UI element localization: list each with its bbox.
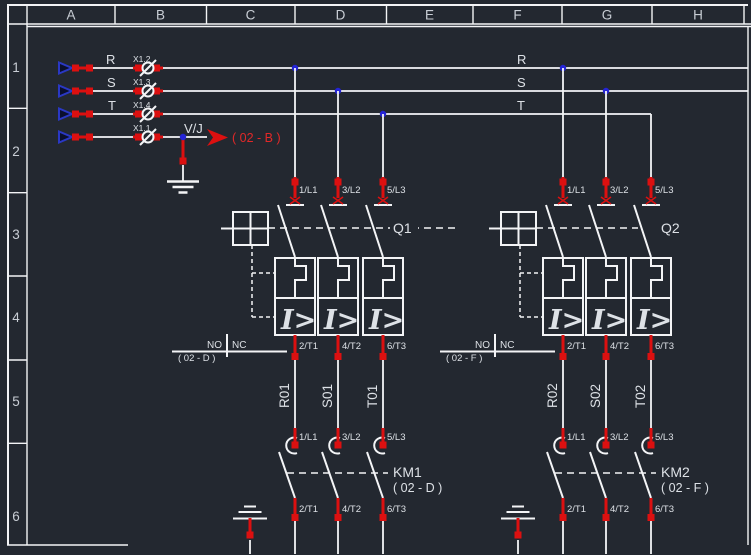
row-header: 5 — [12, 394, 20, 409]
row-header: 4 — [12, 310, 20, 325]
wire-number-label: S02 — [588, 384, 603, 408]
trip-link-dashed — [520, 245, 543, 317]
terminal-x-marks — [290, 197, 388, 204]
frame-outer-border — [7, 5, 748, 545]
terminal-x-marks — [558, 197, 656, 204]
neutral-label: V/J — [184, 121, 203, 136]
aux-crossref-label: ( 02 - F ) — [446, 353, 482, 364]
contactor-terminal-label: 1/L1 — [299, 432, 318, 443]
contactor-terminal-label: 1/L1 — [567, 432, 586, 443]
breaker-terminal-label: 1/L1 — [299, 185, 318, 196]
breaker-terminal-label: 2/T1 — [299, 341, 318, 352]
column-header: G — [602, 8, 613, 23]
aux-crossref-label: ( 02 - D ) — [178, 353, 215, 364]
trip-symbol: I> — [280, 305, 316, 336]
phase-label-left: R — [106, 52, 115, 67]
wire-number-label: T02 — [633, 385, 648, 408]
trip-symbol: I> — [368, 305, 404, 336]
aux-no-label: NO — [207, 340, 222, 351]
trip-link-dashed — [252, 245, 275, 317]
crossref-label: ( 02 - B ) — [232, 131, 281, 145]
breaker-terminal-label: 4/T2 — [342, 341, 361, 352]
source-arrow-icon — [59, 132, 72, 143]
phase-label-right: T — [517, 98, 525, 113]
terminal-label: X1.3 — [133, 77, 151, 87]
column-header: B — [156, 8, 165, 23]
breaker-terminal-label: 6/T3 — [655, 341, 674, 352]
wire-number-label: R01 — [277, 383, 292, 408]
row-header: 1 — [12, 60, 20, 75]
trip-symbol: I> — [636, 305, 672, 336]
trip-symbol: I> — [591, 305, 627, 336]
contactor-tag: KM1 — [393, 464, 422, 480]
column-header: D — [336, 8, 346, 23]
breaker-terminal-label: 5/L3 — [655, 185, 674, 196]
aux-nc-label: NC — [232, 340, 246, 351]
crossref-arrow-icon — [207, 129, 228, 146]
contactor-terminal-label: 6/T3 — [655, 504, 674, 515]
row-header: 3 — [12, 227, 20, 242]
source-arrow-icon — [59, 86, 72, 97]
aux-no-label: NO — [475, 340, 490, 351]
contactor-terminal-label: 2/T1 — [299, 504, 318, 515]
trip-symbol: I> — [323, 305, 359, 336]
contactor-terminal-label: 3/L2 — [342, 432, 361, 443]
contactor-terminal-label: 4/T2 — [342, 504, 361, 515]
contactor-terminal-label: 3/L2 — [610, 432, 629, 443]
contactor-terminal-label: 2/T1 — [567, 504, 586, 515]
earth-ground-icon — [167, 182, 199, 193]
breaker-tag: Q1 — [393, 220, 412, 236]
column-header: A — [66, 8, 75, 23]
cad-canvas: A B C D E F G H 1 2 3 4 5 6 — [0, 0, 751, 555]
wire-number-label: T01 — [365, 385, 380, 408]
column-header: C — [246, 8, 256, 23]
column-header: H — [693, 8, 703, 23]
breaker-terminal-label: 6/T3 — [387, 341, 406, 352]
breaker-terminal-label: 2/T1 — [567, 341, 586, 352]
terminal-label: X1.4 — [133, 100, 151, 110]
contactor-terminal-label: 6/T3 — [387, 504, 406, 515]
breaker-terminal-label: 3/L2 — [610, 185, 629, 196]
contactor-crossref-label: ( 02 - F ) — [661, 481, 709, 495]
phase-label-right: R — [517, 52, 526, 67]
phase-label-left: T — [108, 98, 116, 113]
source-arrow-icons — [59, 63, 72, 143]
frame-column-ticks — [27, 5, 744, 24]
breaker-terminal-label: 4/T2 — [610, 341, 629, 352]
terminal-label: X1.1 — [133, 123, 151, 133]
aux-nc-label: NC — [500, 340, 514, 351]
breaker-tag: Q2 — [661, 220, 680, 236]
row-header: 2 — [12, 144, 20, 159]
wire-number-label: S01 — [320, 384, 335, 408]
contactor-tag: KM2 — [661, 464, 690, 480]
branch-red-wires — [518, 177, 651, 537]
trip-symbol: I> — [548, 305, 584, 336]
motor-branch-2: 1/L1 3/L2 5/L3 Q2 I> I> I> 2/T1 4/T2 6/T… — [440, 68, 709, 554]
column-header: F — [513, 8, 521, 23]
source-arrow-icon — [59, 63, 72, 74]
phase-label-left: S — [107, 75, 116, 90]
contactor-crossref-label: ( 02 - D ) — [393, 481, 442, 495]
contactor-terminal-label: 5/L3 — [387, 432, 406, 443]
contactor-terminal-label: 4/T2 — [610, 504, 629, 515]
branch-red-wires — [250, 177, 383, 537]
incoming-power: R S T V/J X1.2 X1.3 X1.4 X1.1 R S T ( 02… — [59, 52, 748, 193]
terminal-label: X1.2 — [133, 54, 151, 64]
breaker-terminal-label: 1/L1 — [567, 185, 586, 196]
source-arrow-icon — [59, 109, 72, 120]
schematic-drawing: A B C D E F G H 1 2 3 4 5 6 — [0, 0, 751, 555]
contactor-terminal-label: 5/L3 — [655, 432, 674, 443]
phase-label-right: S — [517, 75, 526, 90]
row-header: 6 — [12, 509, 20, 524]
breaker-terminal-label: 5/L3 — [387, 185, 406, 196]
junction-dots — [180, 65, 609, 140]
breaker-terminal-label: 3/L2 — [342, 185, 361, 196]
wire-number-label: R02 — [545, 383, 560, 408]
column-header: E — [425, 8, 434, 23]
